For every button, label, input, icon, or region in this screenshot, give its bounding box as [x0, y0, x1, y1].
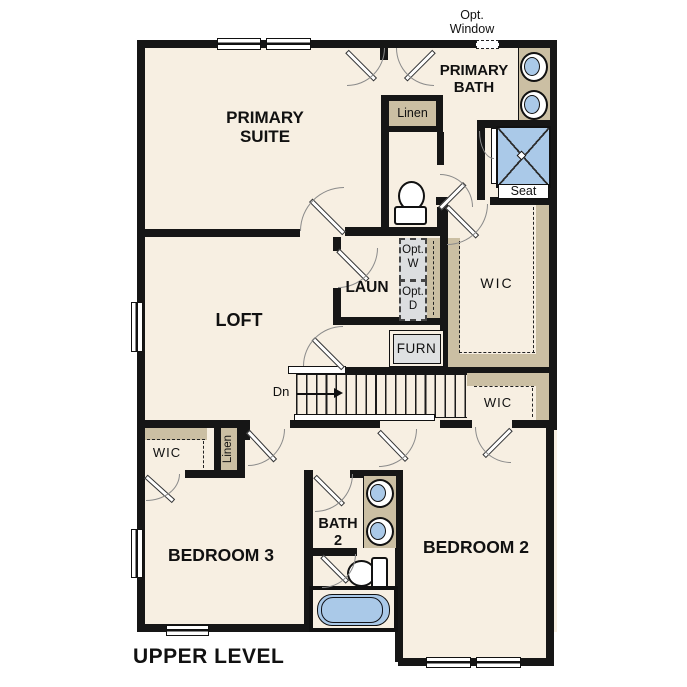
wic-hall-dash-right: [532, 388, 533, 417]
linen-bath-text: Linen: [397, 106, 428, 120]
room-label-bath2: BATH 2: [314, 516, 362, 549]
wall-midcolumn-left: [381, 95, 389, 235]
primary-suite-line1: PRIMARY: [180, 108, 350, 127]
window-bedroom2-bottom-2: [476, 657, 521, 668]
window-suite-1: [217, 38, 261, 50]
stair-rail-bottom: [294, 414, 435, 421]
room-label-primary-suite: PRIMARY SUITE: [180, 108, 350, 147]
opt-dryer-line2: D: [401, 299, 425, 313]
bedroom2-text: BEDROOM 2: [423, 537, 529, 557]
wic-primary-dash-left: [459, 241, 460, 353]
sink-basin: [370, 484, 386, 502]
bath2-line2: 2: [314, 533, 362, 550]
wall-toiletroom-right-a: [437, 132, 444, 165]
tub-icon: [309, 586, 398, 632]
laundry-text: LAUN: [345, 279, 388, 296]
tub-basin: [317, 594, 390, 626]
window-bedroom2-bottom-1: [426, 657, 471, 668]
wall-bedroom2-left: [395, 470, 403, 662]
furnace-inner: FURN: [393, 334, 441, 364]
window-suite-2: [266, 38, 311, 50]
sink-basin: [524, 95, 540, 114]
loft-text: LOFT: [216, 310, 263, 330]
opt-washer-line1: Opt.: [401, 243, 425, 257]
wall-wic3-bottom: [185, 470, 245, 478]
window-bedroom3-bottom: [166, 625, 209, 636]
wic-hall-shelf-top: [467, 373, 549, 386]
primary-bath-line2: BATH: [428, 79, 520, 96]
room-label-bedroom3: BEDROOM 3: [146, 546, 296, 566]
sink-basin: [370, 522, 386, 540]
wall-hall-row-d: [512, 420, 554, 428]
label-linen-hall: Linen: [222, 424, 236, 474]
wic-hall-dash-top: [474, 386, 534, 387]
toilet-tank: [394, 206, 427, 225]
shower-seat: Seat: [498, 184, 549, 199]
plan-title: UPPER LEVEL: [133, 645, 353, 669]
wall-wic3-divider-left: [214, 423, 221, 470]
wic-hall-text: WIC: [484, 395, 512, 410]
label-opt-window: Opt. Window: [436, 8, 508, 37]
toilet-tank: [371, 557, 388, 589]
wall-wic3-divider-right: [237, 423, 245, 470]
sink-icon: [366, 517, 394, 546]
wic-bedroom3-dash: [147, 439, 205, 440]
bath2-line1: BATH: [314, 516, 362, 533]
wic-bedroom3-text: WIC: [153, 445, 181, 460]
wall-linen-right: [436, 95, 443, 132]
toilet-icon: [394, 181, 427, 225]
primary-bath-line1: PRIMARY: [428, 62, 520, 79]
wall-linen-bottom: [381, 126, 443, 132]
linen-hall-text: Linen: [222, 435, 234, 463]
sink-icon: [520, 52, 548, 82]
wall-hall-row-b: [290, 420, 380, 428]
floor-plan: Seat Opt. W Opt. D FURN: [0, 0, 687, 687]
stairs-down-arrow: [297, 393, 335, 395]
opt-dryer-line1: Opt.: [401, 285, 425, 299]
plan-title-text: UPPER LEVEL: [133, 645, 284, 668]
furnace-box: FURN: [389, 330, 444, 367]
room-label-laundry: LAUN: [330, 279, 404, 297]
wic-hall-shelf-right: [536, 386, 549, 420]
wall-hall-row-c: [440, 420, 472, 428]
wall-suite-loft-b: [345, 227, 448, 236]
wic-primary-dash-right: [533, 207, 534, 353]
wic-primary-text: WIC: [480, 275, 513, 291]
wall-laundry-bottom: [333, 317, 448, 325]
wic-primary-shelf-bottom: [448, 354, 549, 367]
room-label-loft: LOFT: [189, 310, 289, 331]
window-loft-left: [131, 302, 143, 352]
wall-suite-loft-a: [137, 229, 300, 237]
wic-primary-shelf-right: [536, 205, 549, 367]
laundry-counter-dash: [433, 241, 434, 315]
primary-suite-line2: SUITE: [180, 127, 350, 146]
wic-primary-dash-bottom: [459, 352, 535, 353]
furnace-label: FURN: [397, 341, 437, 356]
seat-label: Seat: [511, 184, 537, 198]
stairs-down-arrowhead: [334, 388, 343, 398]
room-label-wic-bedroom3: WIC: [145, 446, 189, 461]
room-label-wic-primary: WIC: [462, 276, 532, 292]
stairs: [296, 374, 467, 418]
stairs-down-text: Dn: [273, 384, 290, 399]
tub-inner-rim: [321, 597, 383, 623]
room-label-primary-bath: PRIMARY BATH: [428, 62, 520, 96]
label-linen-bath: Linen: [389, 106, 436, 120]
sink-icon: [366, 479, 394, 508]
sink-basin: [524, 57, 540, 76]
optional-window-icon: [476, 40, 499, 49]
bedroom3-text: BEDROOM 3: [168, 545, 274, 565]
opt-window-line1: Opt.: [436, 8, 508, 22]
room-label-bedroom2: BEDROOM 2: [400, 538, 552, 558]
window-bedroom3-left: [131, 529, 143, 578]
opt-washer-line2: W: [401, 257, 425, 271]
opt-window-line2: Window: [436, 22, 508, 36]
sink-icon: [520, 90, 548, 120]
wic-bedroom3-dash-v: [203, 441, 204, 468]
washer-box: Opt. W: [399, 238, 427, 281]
room-label-wic-hall: WIC: [468, 396, 528, 411]
label-stairs-down: Dn: [268, 385, 294, 400]
